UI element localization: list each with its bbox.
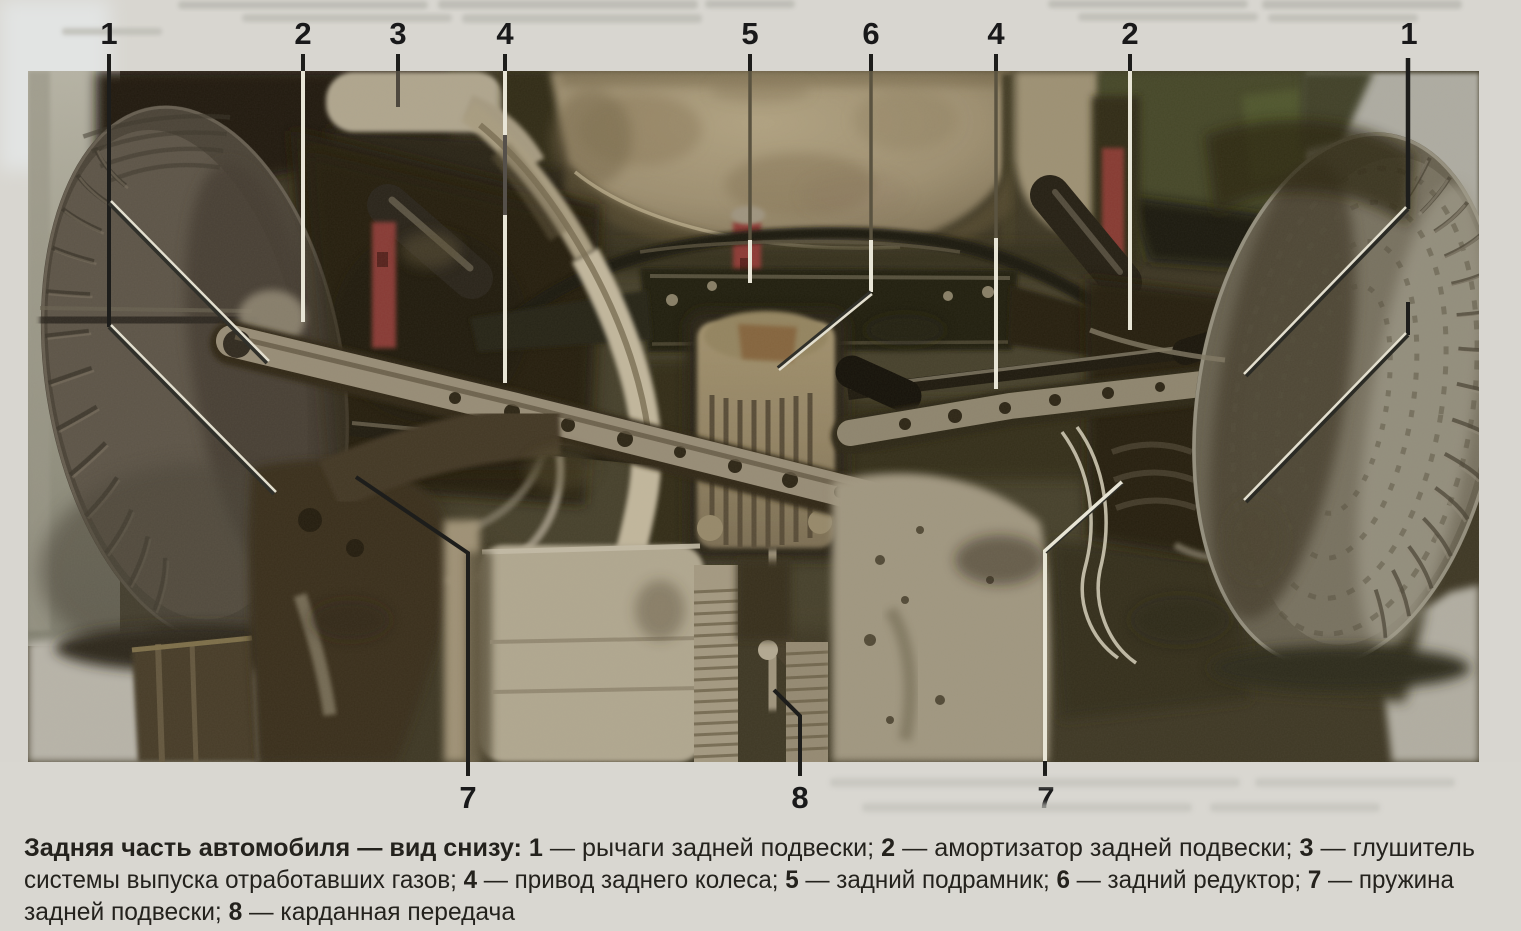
svg-text:задней подвески; 8 — карданная: задней подвески; 8 — карданная передача: [24, 898, 515, 926]
svg-text:4: 4: [496, 16, 514, 51]
svg-text:4: 4: [987, 16, 1005, 51]
svg-text:7: 7: [459, 780, 476, 815]
svg-text:8: 8: [791, 780, 808, 815]
svg-text:5: 5: [741, 16, 758, 51]
svg-text:1: 1: [1400, 16, 1417, 51]
svg-text:1: 1: [100, 16, 117, 51]
svg-text:3: 3: [389, 16, 406, 51]
svg-text:системы выпуска отработавших г: системы выпуска отработавших газов; 4 — …: [24, 866, 1454, 894]
svg-text:2: 2: [294, 16, 311, 51]
svg-text:6: 6: [862, 16, 879, 51]
svg-text:Задняя часть автомобиля — вид: Задняя часть автомобиля — вид снизу: 1 —…: [24, 834, 1475, 862]
svg-text:2: 2: [1121, 16, 1138, 51]
